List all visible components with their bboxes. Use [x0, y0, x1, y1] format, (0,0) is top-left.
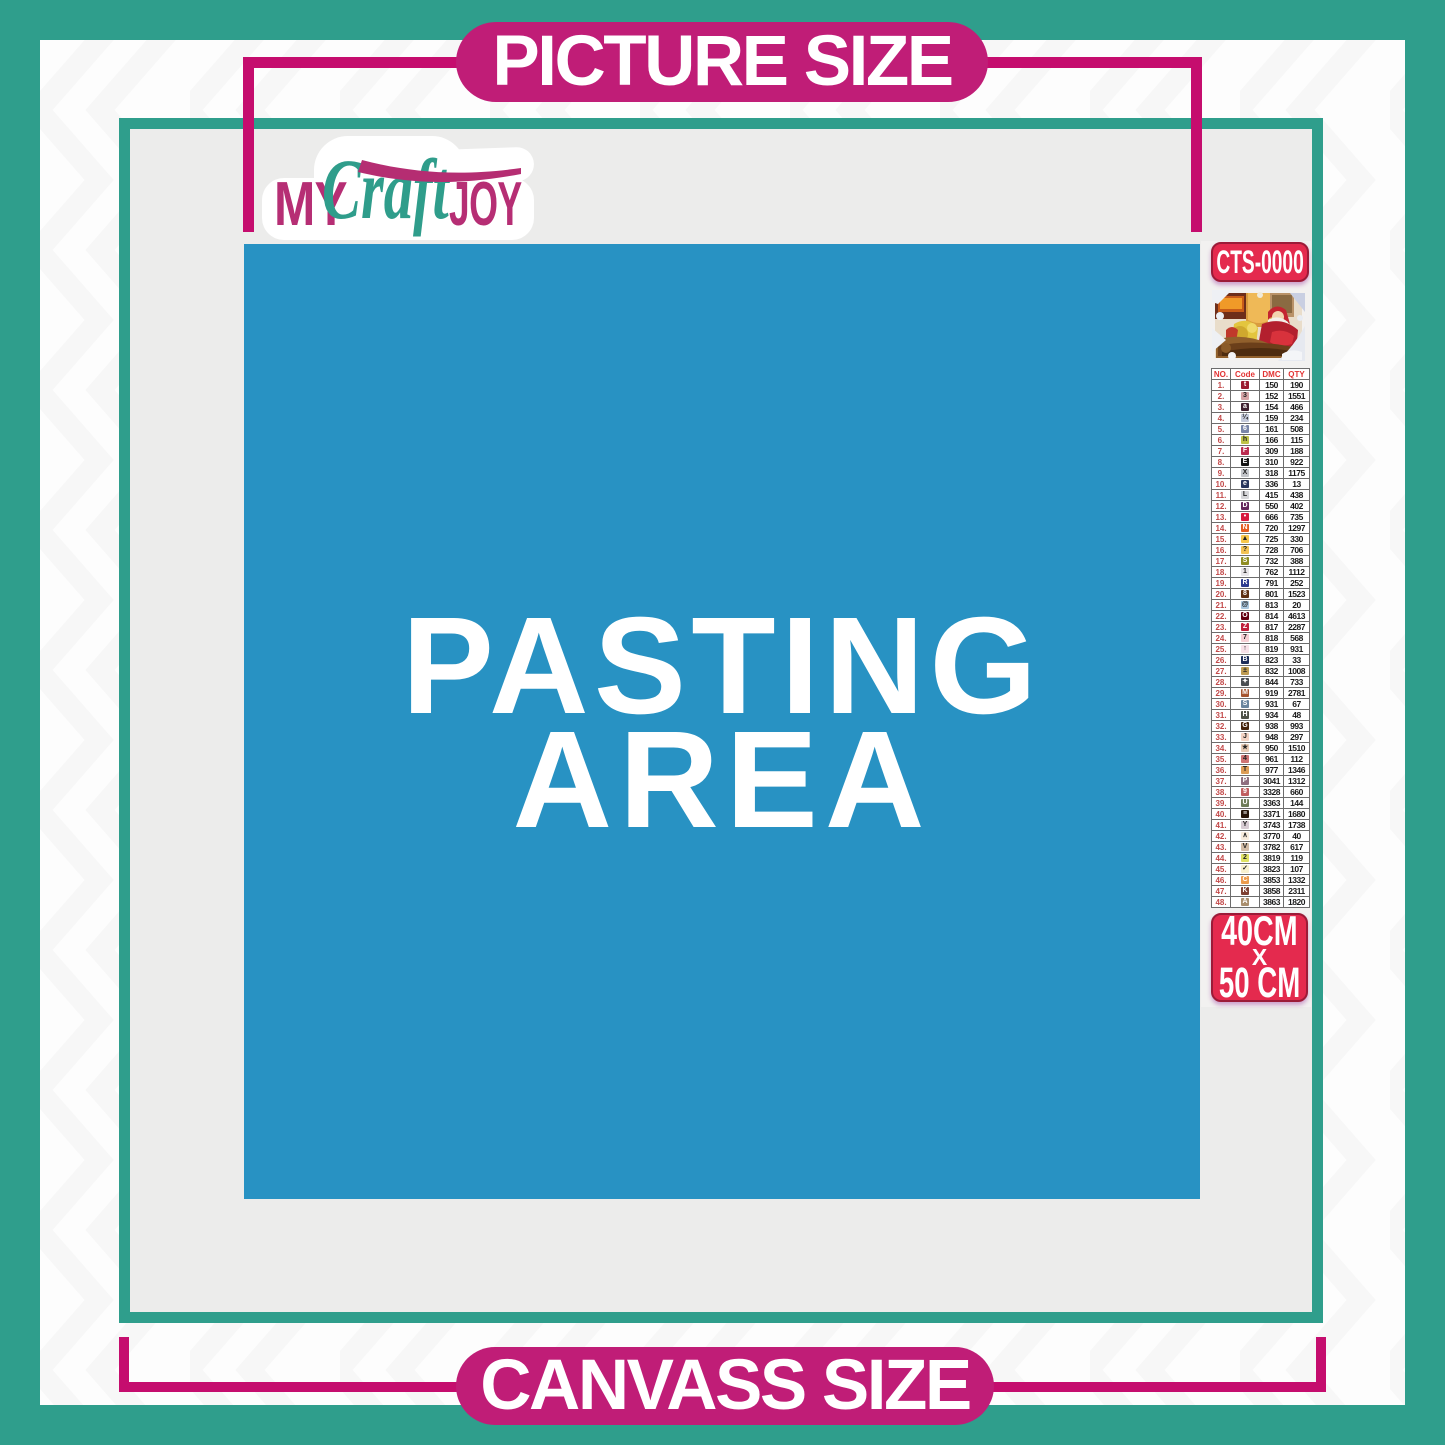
svg-text:JOY: JOY	[449, 169, 522, 238]
svg-text:Craft: Craft	[322, 141, 451, 237]
